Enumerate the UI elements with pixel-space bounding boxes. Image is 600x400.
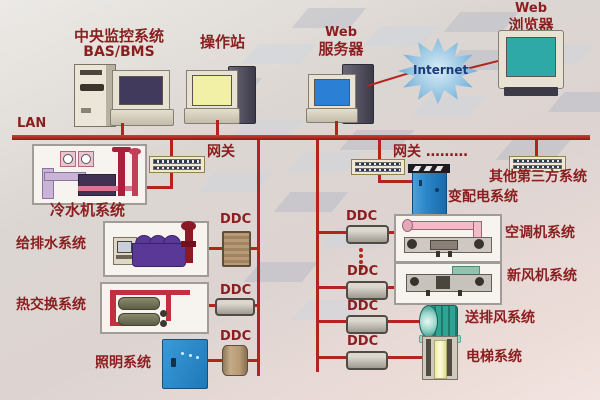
fan-ddc-label: DDC bbox=[347, 300, 378, 315]
fresh-air-box bbox=[394, 262, 502, 305]
power-cabinet-icon bbox=[412, 169, 447, 215]
elevator-ddc-device-icon bbox=[346, 351, 388, 370]
ahu-ddc-label: DDC bbox=[346, 210, 377, 225]
fresh-air-label: 新风机系统 bbox=[507, 269, 577, 285]
heat-exchange-label: 热交换系统 bbox=[16, 298, 86, 314]
lighting-ddc-device-icon bbox=[222, 345, 248, 376]
elevator-ddc-label: DDC bbox=[347, 335, 378, 350]
lighting-ddc-label: DDC bbox=[220, 330, 251, 345]
internet-label: Internet bbox=[413, 64, 468, 77]
third-party-system-label: 其他第三方系统 bbox=[489, 170, 587, 186]
bas-subtitle: BAS/BMS bbox=[58, 45, 180, 61]
web-server-lan-drop-line bbox=[335, 121, 338, 136]
gateway1-label: 网关 bbox=[207, 145, 235, 161]
supply-exhaust-fan-label: 送排风系统 bbox=[465, 311, 535, 327]
gateway2-cabinet-line bbox=[378, 180, 415, 183]
gateway2-device-icon bbox=[351, 159, 405, 175]
water-system-label: 给排水系统 bbox=[16, 237, 86, 253]
chiller-system-label: 冷水机系统 bbox=[50, 202, 125, 219]
lighting-system-label: 照明系统 bbox=[95, 356, 151, 372]
ahu-ddc-device-icon bbox=[346, 225, 389, 244]
elevator-label: 电梯系统 bbox=[466, 350, 522, 366]
bas-workstation-label: 中央监控系统 BAS/BMS bbox=[58, 28, 180, 60]
heat-exchange-box bbox=[100, 282, 209, 334]
power-dist-label: 变配电系统 bbox=[448, 190, 518, 206]
water-system-box bbox=[103, 221, 209, 277]
heat-ddc-label: DDC bbox=[220, 284, 251, 299]
lighting-panel-icon bbox=[162, 339, 208, 389]
web-server-label: Web 服务器 bbox=[312, 26, 370, 57]
fan-ddc-device-icon bbox=[346, 315, 388, 334]
fresh-air-ddc-device-icon bbox=[346, 281, 388, 300]
right-ddc-bus-line bbox=[316, 140, 319, 372]
chiller-system-box bbox=[32, 144, 147, 205]
gateway1-device-icon bbox=[149, 156, 205, 173]
lan-bus-line bbox=[12, 135, 590, 140]
operator-station-label: 操作站 bbox=[200, 34, 245, 51]
bas-network-diagram: 中央监控系统 BAS/BMS 操作站 Web 服务器 Web 浏览器 bbox=[0, 0, 600, 400]
operator-lan-drop-line bbox=[216, 120, 219, 136]
fresh-air-ddc-label: DDC bbox=[347, 265, 378, 280]
water-ddc-label: DDC bbox=[220, 213, 251, 228]
web-browser-label: Web 浏览器 bbox=[500, 2, 562, 33]
bas-title: 中央监控系统 bbox=[58, 28, 180, 45]
gateway2-label: 网关 ……… bbox=[393, 145, 468, 161]
left-ddc-bus-line bbox=[257, 140, 260, 376]
water-ddc-device-icon bbox=[222, 231, 251, 267]
heat-ddc-device-icon bbox=[215, 298, 255, 316]
power-cabinet-top-icon bbox=[408, 164, 450, 173]
lan-label: LAN bbox=[17, 117, 46, 132]
ahu-label: 空调机系统 bbox=[505, 226, 575, 242]
ahu-box bbox=[394, 214, 502, 263]
